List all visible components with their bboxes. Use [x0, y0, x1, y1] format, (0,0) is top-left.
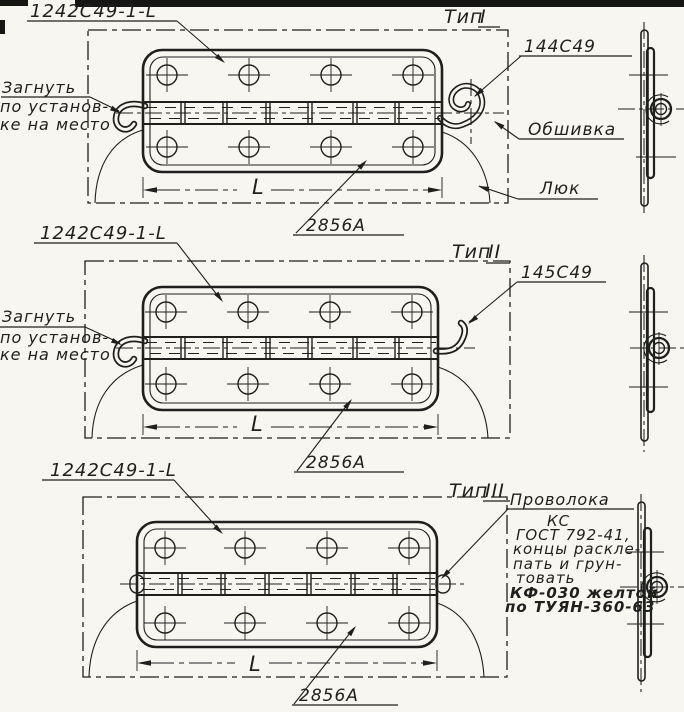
hatch-corner-arc — [438, 367, 488, 438]
length-dim-label: L — [252, 175, 265, 199]
scanned-drawing-page: 1242С49-1-L Тип I 144С49 Обшивка Люк Заг… — [0, 0, 684, 712]
part-number-label: 1242С49-1-L — [50, 460, 177, 481]
length-dimension — [143, 177, 442, 198]
length-dimension — [137, 650, 437, 671]
type-label-numeral: I — [480, 6, 487, 28]
pin-end-label: 145С49 — [521, 263, 593, 283]
rivet-holes — [144, 531, 430, 640]
hinge-plate — [143, 50, 442, 172]
type2-view: 1242С49-1-L Тип II 145С49 Загнуть по уст… — [0, 223, 606, 473]
hatch-corner-arc — [437, 603, 484, 677]
type-label-numeral: III — [485, 480, 505, 502]
type1-side-view — [618, 22, 684, 214]
rivet-holes — [146, 58, 434, 164]
part-number-label: 1242С49-1-L — [40, 223, 167, 244]
bend-note-line: Загнуть — [2, 307, 76, 326]
length-dimension — [143, 414, 438, 435]
type-label-prefix: Тип — [444, 6, 483, 28]
wire-hook-left — [116, 339, 145, 364]
wire-note-line-bold: по ТУЯН-360-63 — [505, 598, 655, 616]
skin-label: Обшивка — [528, 120, 616, 140]
hatch-corner-arc — [442, 132, 490, 203]
bend-note-line: по установ- — [0, 97, 109, 116]
length-dim-label: L — [251, 412, 264, 436]
bend-note-line: ке на место — [0, 345, 111, 364]
wire-curl-right — [440, 86, 482, 126]
bend-note-line: Загнуть — [2, 78, 76, 97]
pin-end-label: 144С49 — [524, 37, 596, 57]
wire-note-title: Проволока — [510, 490, 610, 509]
panel-phantom-outline — [88, 30, 508, 203]
doc-number-label: 2856А — [299, 686, 359, 706]
doc-number-label: 2856А — [306, 216, 366, 236]
bend-note-line: ке на место — [0, 115, 111, 134]
wire-hook-right — [436, 323, 465, 351]
part-number-label: 1242С49-1-L — [30, 1, 157, 22]
type3-view: 1242С49-1-L Тип III Проволока КС ГОСТ 79… — [42, 460, 659, 706]
hatch-corner-arc — [92, 365, 143, 438]
type-label-prefix: Тип — [452, 241, 491, 263]
wire-hook-left — [116, 104, 145, 129]
hatch-label: Люк — [539, 179, 580, 199]
wire-note: Проволока КС ГОСТ 792-41, концы раскле- … — [505, 490, 659, 616]
hatch-corner-arc — [89, 601, 137, 677]
hatch-corner-arc — [95, 130, 143, 203]
type-label-numeral: II — [488, 241, 501, 263]
type-label-prefix: Тип — [449, 480, 488, 502]
type2-side-view — [629, 255, 684, 452]
doc-number-label: 2856А — [306, 453, 366, 473]
type1-view: 1242С49-1-L Тип I 144С49 Обшивка Люк Заг… — [0, 1, 632, 236]
length-dim-label: L — [249, 652, 262, 676]
hinge-drawing-svg: 1242С49-1-L Тип I 144С49 Обшивка Люк Заг… — [0, 0, 684, 712]
